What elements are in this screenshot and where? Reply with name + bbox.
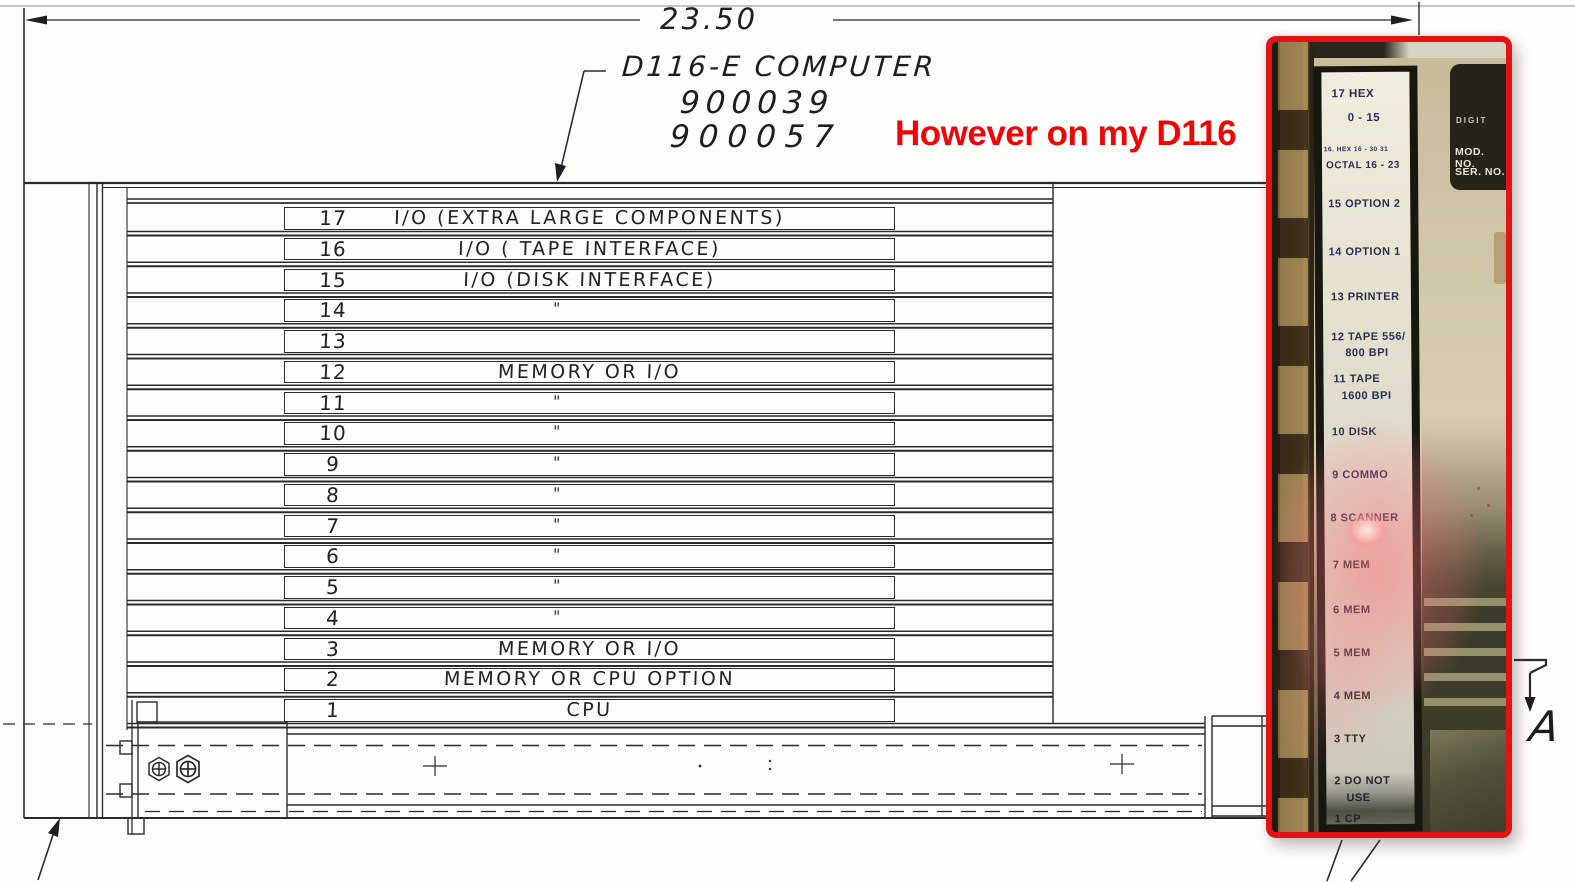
strip-label: 7 MEM — [1333, 559, 1370, 571]
strip-label: 2 DO NOT — [1334, 775, 1390, 787]
slot-row-4: 4" — [284, 607, 895, 630]
center-mark — [423, 754, 1134, 776]
drawing-part-number-2: 900057 — [669, 119, 844, 155]
speckle — [1487, 504, 1490, 507]
slot-description: " — [553, 545, 564, 564]
slot-row-1: 1CPU — [284, 699, 895, 722]
slot-description: I/O ( TAPE INTERFACE) — [285, 238, 895, 260]
slot-number: 9 — [310, 452, 355, 476]
slot-description: " — [553, 576, 564, 595]
vent-lower-panel — [1430, 730, 1506, 832]
inspection-sticker — [1494, 232, 1506, 284]
strip-label: 16. HEX 16 - 30 31 — [1324, 146, 1388, 153]
slot-description: I/O (DISK INTERFACE) — [285, 269, 895, 291]
slot-description: " — [553, 453, 564, 472]
label-strip-face: 17 HEX0 - 1516. HEX 16 - 30 31OCTAL 16 -… — [1321, 72, 1414, 825]
strip-label: 9 COMMO — [1332, 469, 1388, 481]
strip-label: 17 HEX — [1331, 88, 1374, 100]
strip-label: 3 TTY — [1334, 733, 1367, 745]
slot-row-16: 16I/O ( TAPE INTERFACE) — [284, 238, 895, 261]
slot-description: " — [553, 299, 564, 318]
slot-description: CPU — [285, 699, 895, 721]
bracket-body — [138, 722, 287, 818]
view-a-arrow — [1514, 660, 1546, 701]
slot-description: MEMORY OR CPU OPTION — [285, 668, 895, 690]
strip-label: 1600 BPI — [1342, 390, 1392, 402]
slot-row-11: 11" — [284, 392, 895, 415]
corner-pointer-arrow — [48, 818, 60, 837]
slot-row-13: 13 — [284, 330, 895, 353]
bracket-foot — [128, 818, 144, 834]
strip-label: 5 MEM — [1333, 647, 1370, 659]
strip-label: 1 CP — [1335, 813, 1362, 825]
slot-description: " — [553, 422, 564, 441]
strip-label: 4 MEM — [1334, 690, 1371, 702]
strip-label: 14 OPTION 1 — [1329, 246, 1401, 259]
strip-label: 6 MEM — [1333, 604, 1370, 616]
slot-number: 7 — [310, 514, 355, 538]
strip-label: USE — [1346, 792, 1370, 804]
strip-label: 15 OPTION 2 — [1328, 198, 1400, 211]
strip-label: 0 - 15 — [1348, 112, 1381, 124]
plate-ser-no: SER. NO. — [1455, 166, 1505, 178]
slot-row-3: 3MEMORY OR I/O — [284, 638, 895, 661]
slot-row-10: 10" — [284, 422, 895, 445]
slot-description: " — [553, 515, 564, 534]
slot-number: 14 — [310, 298, 355, 322]
slot-row-6: 6" — [284, 545, 895, 568]
title-leader-arrow — [555, 163, 566, 182]
hex-nut — [177, 756, 199, 783]
slot-number: 10 — [310, 421, 355, 445]
slot-number: 6 — [310, 544, 355, 568]
slot-number: 5 — [310, 575, 355, 599]
strip-label: 10 DISK — [1332, 426, 1377, 438]
model-serial-plate: DIGIT MOD. NO. SER. NO. — [1450, 64, 1506, 190]
slot-label-strip: 17 HEX0 - 1516. HEX 16 - 30 31OCTAL 16 -… — [1313, 66, 1422, 833]
photo-top-band — [1314, 42, 1506, 58]
slot-row-14: 14" — [284, 299, 895, 322]
strip-label: 13 PRINTER — [1331, 291, 1400, 303]
hinge-knuckles — [1278, 42, 1308, 832]
strip-label: 11 TAPE — [1333, 373, 1380, 385]
photo-inset: DIGIT MOD. NO. SER. NO. 17 HEX0 - 1516. … — [1266, 36, 1512, 838]
slot-number: 4 — [310, 606, 355, 630]
slot-number: 13 — [310, 329, 355, 353]
slot-description: " — [553, 392, 564, 411]
dimension-arrow-right — [1391, 16, 1413, 25]
bracket-top-tab — [137, 702, 157, 722]
slot-description: I/O (EXTRA LARGE COMPONENTS) — [285, 207, 895, 229]
slot-row-8: 8" — [284, 484, 895, 507]
dimension-arrow-left — [25, 16, 47, 25]
drawing-title: D116-E COMPUTER — [621, 50, 937, 83]
slot-row-7: 7" — [284, 515, 895, 538]
slot-row-5: 5" — [284, 576, 895, 599]
strip-label: 800 BPI — [1345, 347, 1388, 359]
slot-row-2: 2MEMORY OR CPU OPTION — [284, 668, 895, 691]
slot-row-17: 17I/O (EXTRA LARGE COMPONENTS) — [284, 207, 895, 230]
slot-description: " — [553, 607, 564, 626]
drawing-part-number-1: 900039 — [679, 85, 836, 121]
speckle — [1470, 514, 1473, 517]
slot-row-9: 9" — [284, 453, 895, 476]
slot-description: MEMORY OR I/O — [285, 638, 895, 660]
slot-number: 11 — [310, 391, 355, 415]
slot-number: 8 — [310, 483, 355, 507]
hex-nut — [149, 758, 169, 781]
slot-row-15: 15I/O (DISK INTERFACE) — [284, 269, 895, 292]
slot-description: MEMORY OR I/O — [285, 361, 895, 383]
brand-logo: DIGIT — [1456, 116, 1487, 125]
slot-row-12: 12MEMORY OR I/O — [284, 361, 895, 384]
slot-description: " — [553, 484, 564, 503]
drawing-page: 23.50 D116-E COMPUTER 900039 900057 Howe… — [0, 0, 1575, 882]
strip-label: OCTAL 16 - 23 — [1326, 160, 1400, 172]
speckle — [1477, 487, 1480, 490]
vent-slats — [1424, 598, 1506, 708]
strip-label: 12 TAPE 556/ — [1331, 331, 1405, 344]
strip-label: 8 SCANNER — [1330, 512, 1398, 524]
dimension-value: 23.50 — [660, 2, 810, 36]
annotation-text: However on my D116 — [895, 114, 1267, 154]
